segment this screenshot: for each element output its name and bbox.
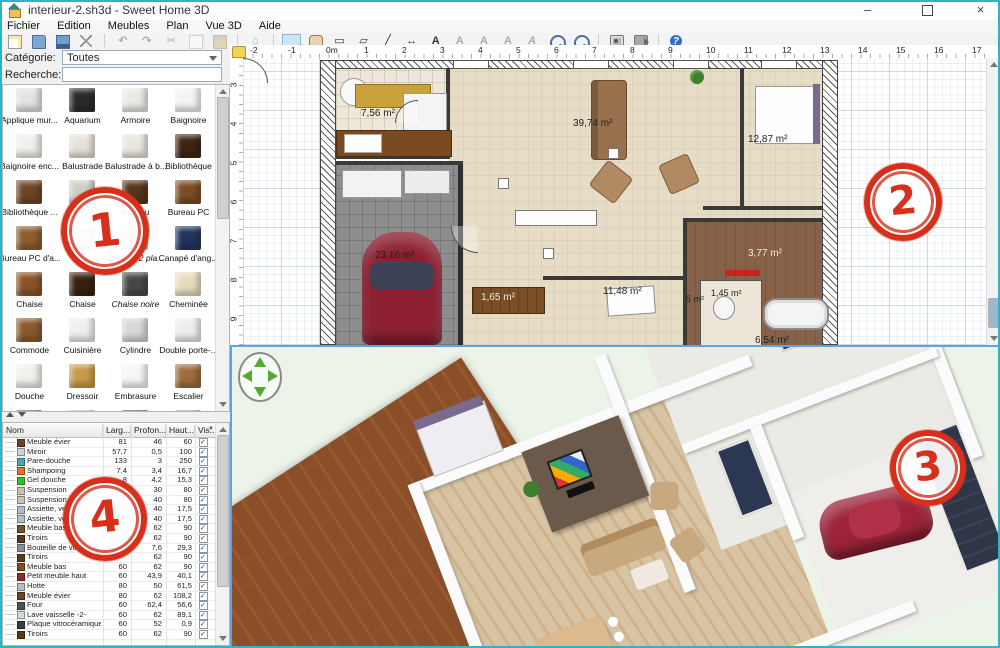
menu-meubles[interactable]: Meubles [101,20,157,33]
armchair-3d[interactable] [650,482,678,510]
furniture-thumbnail [175,134,201,158]
window[interactable] [761,60,797,69]
menu-plan[interactable]: Plan [159,20,195,33]
table-header: Nom Larg... Profon... Haut... Vis... ▼ [3,423,216,438]
collapse-up-icon[interactable] [6,412,14,417]
furniture-type-icon [17,592,25,600]
scrollbar-thumb[interactable] [217,435,229,587]
window[interactable] [673,60,709,69]
furniture-type-icon [17,458,25,466]
catalog-item[interactable]: Douche [3,361,56,407]
wall-exterior-left [320,60,336,345]
catalog-scrollbar[interactable] [215,85,229,411]
app-logo-icon [7,3,21,17]
door-arc [243,58,268,83]
furniture-type-icon [17,487,25,495]
house-3d [340,345,1000,648]
menu-fichier[interactable]: Fichier [0,20,47,33]
furniture-type-icon [17,448,25,456]
title-bar: interieur-2.sh3d - Sweet Home 3D – × [0,0,1000,20]
scroll-down-icon[interactable] [219,402,227,407]
furniture-thumbnail [122,318,148,342]
furniture-thumbnail [16,180,42,204]
furniture-thumbnail [122,364,148,388]
catalog-item[interactable]: Chaise [56,269,109,315]
save-icon[interactable] [53,34,72,49]
window[interactable] [453,60,489,69]
catalog-item[interactable]: Commode [3,315,56,361]
navigation-compass-icon[interactable] [238,352,282,402]
copy-icon[interactable] [186,34,205,49]
furniture-type-icon [17,602,25,610]
window-frame-edge [0,0,1000,2]
scrollbar-thumb[interactable] [217,97,229,219]
room-area-label: 1,45 m² [711,288,742,298]
furniture-thumbnail [175,318,201,342]
room-area-label: 1,65 m² [481,292,515,303]
furniture-thumbnail [175,180,201,204]
scroll-down-icon[interactable] [990,336,998,341]
scroll-up-icon[interactable] [990,62,998,67]
cut-icon[interactable]: ✂ [161,34,180,49]
catalog-item[interactable]: Dressoir [56,361,109,407]
menu-edition[interactable]: Edition [50,20,98,33]
furniture-thumbnail [69,134,95,158]
arrow-left-icon[interactable] [242,370,252,382]
furniture-type-icon [17,525,25,533]
new-document-icon[interactable] [5,34,24,49]
category-row: Catégorie: Toutes [0,50,230,67]
redo-icon[interactable]: ↷ [137,34,156,49]
catalog-item[interactable]: Chaise noire [109,269,162,315]
window-frame-edge [0,0,2,648]
furniture-thumbnail [175,364,201,388]
search-row: Recherche: [0,67,230,84]
scroll-down-icon[interactable] [219,636,227,641]
catalog-item[interactable]: Bibliothèque ... [3,177,56,223]
window-title: interieur-2.sh3d - Sweet Home 3D [28,3,209,17]
furniture-type-icon [17,506,25,514]
room-area-label: 7,56 m² [361,108,395,119]
catalog-item[interactable]: Applique mur... [3,85,56,131]
furniture-thumbnail [122,88,148,112]
furniture-type-icon [17,583,25,591]
furniture-thumbnail [69,318,95,342]
visibility-checkbox[interactable] [199,630,208,639]
col-haut[interactable]: Haut... [166,425,195,437]
bathtub[interactable] [763,298,829,330]
catalog-item[interactable]: Balustrade [56,131,109,177]
catalog-item[interactable]: Double porte-... [162,315,215,361]
catalog-item[interactable]: Chaise [3,269,56,315]
ceiling-light[interactable] [543,248,554,259]
menu-vue3d[interactable]: Vue 3D [199,20,249,33]
chevron-down-icon [209,56,217,61]
furniture-type-icon [17,544,25,552]
furniture-type-icon [17,573,25,581]
arrow-right-icon[interactable] [268,370,278,382]
furniture-type-icon [17,563,25,571]
catalog-item[interactable]: Canapé d'ang... [162,223,215,269]
filter-icon[interactable]: ▼ [208,426,214,432]
catalog-item[interactable]: Cuisinière [56,315,109,361]
furniture-type-icon [17,515,25,523]
room-area-label: 11,48 m² [603,286,642,297]
catalog-item[interactable]: Bibliothèque [162,131,215,177]
room-area-label: 5 m² [686,294,704,304]
ceiling-light[interactable] [608,148,619,159]
wall-bedroom-bottom [703,206,822,210]
view-3d[interactable] [230,345,1000,648]
room-area-label: 12,87 m² [748,134,787,145]
furniture-thumbnail [16,364,42,388]
window[interactable] [573,60,609,69]
wall-bedroom-left [740,68,744,208]
catalog-item[interactable]: Baignoire enc... [3,131,56,177]
vertical-ruler: 3 4 5 6 7 8 9 [230,58,244,345]
catalog-item[interactable]: Balustrade à b... [109,131,162,177]
furniture-type-icon [17,621,25,629]
undo-icon[interactable]: ↶ [113,34,132,49]
category-label: Catégorie: [5,52,56,64]
menu-bar: Fichier Edition Meubles Plan Vue 3D Aide [0,20,1000,33]
furniture-thumbnail [175,226,201,250]
category-select[interactable]: Toutes [62,50,222,65]
app-window: interieur-2.sh3d - Sweet Home 3D – × Fic… [0,0,1000,648]
room-area-label: 3,77 m² [748,248,782,259]
furniture-thumbnail [122,134,148,158]
furniture-type-icon [17,477,25,485]
furniture-thumbnail [16,318,42,342]
table-scrollbar[interactable] [215,423,229,645]
table-row[interactable]: Tiroirs606290 [3,629,216,640]
plant[interactable] [690,70,704,84]
furniture-type-icon [17,496,25,504]
search-label: Recherche: [5,69,61,81]
kitchen-counter[interactable] [515,210,597,226]
furniture-type-icon [17,439,25,447]
room-area-label: 39,74 m² [573,118,612,129]
toilet[interactable] [713,296,735,320]
furniture-thumbnail [175,272,201,296]
scroll-up-icon[interactable] [219,89,227,94]
minimize-button[interactable]: – [845,0,890,20]
furniture-thumbnail [69,88,95,112]
wc-red-wall [725,270,760,276]
maximize-button[interactable] [905,0,950,20]
wall-garage-right [458,165,463,345]
collapse-down-icon[interactable] [18,412,26,417]
garage-shelf[interactable] [404,170,450,194]
furniture-thumbnail [175,88,201,112]
bed-headboard [813,84,820,144]
arrow-up-icon[interactable] [254,357,266,367]
arrow-down-icon[interactable] [254,387,266,397]
scroll-up-icon[interactable] [219,427,227,432]
catalog-item[interactable]: Cheminée [162,269,215,315]
col-larg[interactable]: Larg... [103,425,131,437]
furniture-thumbnail [69,364,95,388]
wall-hall-left [683,218,687,345]
catalog-item[interactable]: Bureau PC [162,177,215,223]
level-tab-icon[interactable] [232,46,246,58]
room-area-label: 6,54 m² [755,335,789,345]
catalog-item[interactable]: Armoire [109,85,162,131]
catalog-item[interactable]: Embrasure [109,361,162,407]
paste-icon[interactable] [210,34,229,49]
furniture-thumbnail [122,272,148,296]
catalog-item[interactable]: Aquarium [56,85,109,131]
furniture-type-icon [17,611,25,619]
menu-aide[interactable]: Aide [252,20,288,33]
furniture-thumbnail [16,272,42,296]
ceiling-light[interactable] [498,178,509,189]
preferences-icon[interactable] [77,34,96,49]
col-profon[interactable]: Profon... [131,425,166,437]
laundry-bench-box [344,134,382,153]
catalog-item[interactable]: Baignoire [162,85,215,131]
catalog-item[interactable]: Bureau PC d'a... [3,223,56,269]
panel-splitter[interactable] [2,410,228,420]
room-area-label: 23,16 m² [375,250,414,261]
col-nom[interactable]: Nom [3,425,103,437]
open-icon[interactable] [29,34,48,49]
furniture-type-icon [17,467,25,475]
wall-mid [543,276,685,280]
furniture-thumbnail [16,134,42,158]
horizontal-ruler: -2 -1 0m 1 2 3 4 5 6 7 8 9 10 11 12 13 1… [243,45,987,59]
garage-shelf[interactable] [342,170,402,198]
furniture-thumbnail [16,88,42,112]
catalog-item[interactable]: Cylindre [109,315,162,361]
furniture-type-icon [17,535,25,543]
furniture-type-icon [17,631,25,639]
catalog-item[interactable]: Escalier [162,361,215,407]
wall-hall-top [685,218,822,222]
close-button[interactable]: × [958,0,1000,20]
furniture-thumbnail [69,272,95,296]
wall-garage-top [336,161,463,165]
toolbar-separator [104,34,105,47]
furniture-thumbnail [16,226,42,250]
search-input[interactable] [62,67,222,82]
furniture-type-icon [17,554,25,562]
car-windshield [370,262,434,290]
